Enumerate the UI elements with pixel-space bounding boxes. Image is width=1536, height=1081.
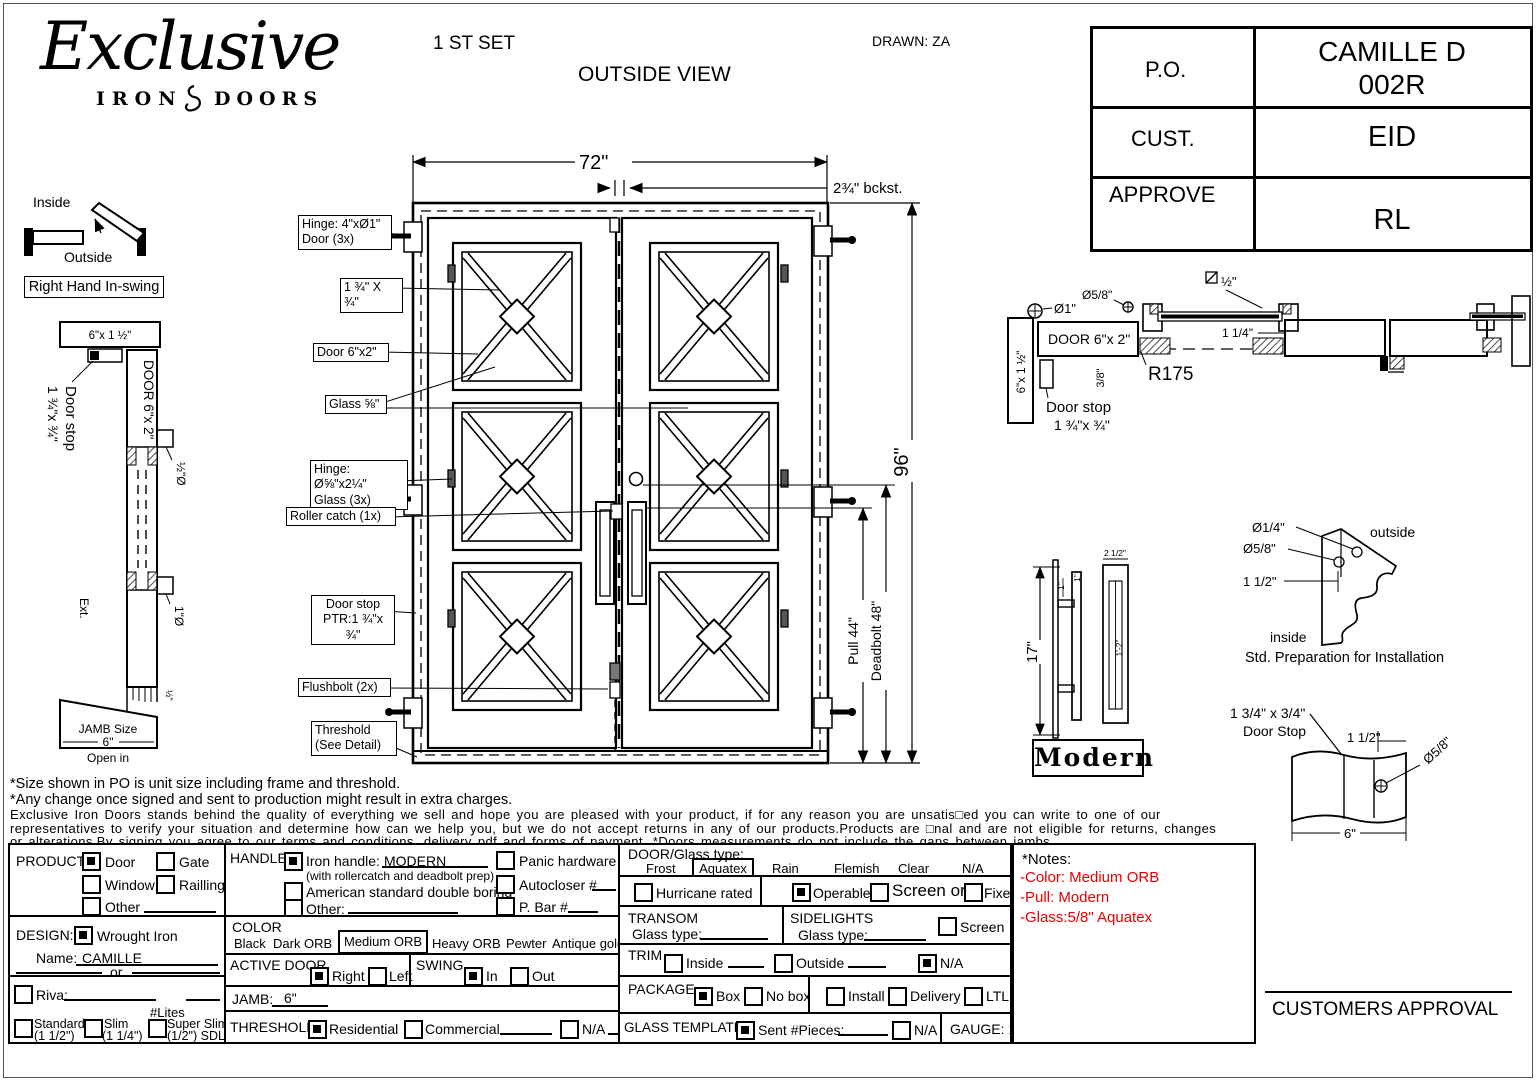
swing-diagram: Inside Outside (24, 194, 146, 265)
stop-detail-offset-label: 1 1/2" (1347, 730, 1381, 745)
active-left-checkbox[interactable] (368, 967, 387, 986)
threshold-commercial-checkbox[interactable] (404, 1020, 423, 1039)
glass-template-label: GLASS TEMPLATE (624, 1020, 743, 1035)
approval-label: CUSTOMERS APPROVAL (1272, 999, 1498, 1021)
threshold-section: THRESHOLD Residential Commercial N/A (224, 1010, 622, 1044)
disclaimer-line3: Exclusive Iron Doors stands behind the q… (10, 808, 1530, 822)
po-value-line1: CAMILLE D (1258, 35, 1526, 68)
product-window-label: Window (105, 877, 155, 893)
sidelights-glass-type-field[interactable] (864, 939, 926, 941)
design-standard-sub: (1 1/2") (34, 1029, 75, 1043)
package-install-label: Install (848, 988, 885, 1004)
hurricane-label: Hurricane rated (656, 885, 753, 901)
handle-one-a-label: 1" (1056, 582, 1066, 590)
package-delivery-label: Delivery (910, 988, 961, 1004)
jamb-field[interactable] (272, 1005, 328, 1007)
page-title: OUTSIDE VIEW (578, 63, 731, 87)
drawn-by-label: DRAWN: ZA (872, 33, 950, 49)
head-one-quarter-label: 1 1/4" (1222, 326, 1253, 340)
disclaimer-block: *Size shown in PO is unit size including… (10, 776, 1530, 848)
handle-label: HANDLE (230, 850, 287, 866)
handle-length-label: 1'-2" (1114, 640, 1124, 657)
operable-checkbox[interactable] (792, 883, 811, 902)
callout-glass: Glass ⅝" (325, 395, 387, 414)
design-name-label: Name: (36, 950, 77, 966)
disclaimer-line2: *Any change once signed and sent to prod… (10, 792, 1530, 808)
sidelights-screen-checkbox[interactable] (938, 917, 957, 936)
jamb-ext-label: Ext. (77, 598, 91, 619)
set-label: 1 ST SET (433, 33, 515, 55)
active-left-label: Left (389, 968, 412, 984)
install-dia14-label: Ø1/4" (1252, 520, 1285, 535)
approval-signature-line[interactable] (1265, 991, 1512, 993)
logo-script: Exclusive (40, 8, 339, 85)
head-dia-one-label: Ø1" (1054, 301, 1076, 316)
design-or-dash-right (132, 972, 220, 974)
logo-word-doors: DOORS (214, 88, 323, 110)
po-table: P.O. CAMILLE D 002R CUST. EID APPROVE RL (1090, 26, 1533, 252)
notes-glass: -Glass:5/8" Aquatex (1020, 909, 1152, 926)
swing-in-checkbox[interactable] (464, 967, 483, 986)
color-antique-gold-option[interactable]: Antique gold (552, 936, 624, 951)
package-label: PACKAGE (628, 981, 695, 997)
callout-bar-size: 1 ¾" X ¾" (340, 278, 403, 313)
handle-panic-label: Panic hardware (519, 853, 616, 869)
cust-label: CUST. (1131, 126, 1195, 152)
product-gate-label: Gate (179, 854, 209, 870)
head-dia58-label: Ø5/8" (1082, 288, 1112, 302)
trim-outside-field[interactable] (848, 966, 886, 968)
swing-in-label: In (486, 968, 498, 984)
head-stop-label: Door stop (1046, 399, 1111, 416)
product-label: PRODUCT: (16, 853, 88, 869)
package-box-label: Box (716, 988, 740, 1004)
notes-box: *Notes: -Color: Medium ORB -Pull: Modern… (1012, 843, 1256, 1044)
height-dim-label: 96" (891, 447, 913, 476)
handle-width-label: 2 1/2" (1104, 548, 1126, 558)
product-railing-label: Railling (179, 877, 225, 893)
po-table-divider (1253, 29, 1256, 249)
callout-hinge-glass-line1: Hinge: Ø⅝"x2¼" (314, 462, 404, 493)
jamb-size-value: 6" (103, 735, 114, 749)
callout-threshold-line2: (See Detail) (315, 738, 393, 753)
product-window-checkbox[interactable] (82, 875, 101, 894)
threshold-na-checkbox[interactable] (560, 1020, 579, 1039)
install-dia58-label: Ø5/8" (1243, 541, 1276, 556)
active-door-swing-section: ACTIVE DOOR Right Left SWING In Out (224, 953, 622, 989)
design-super-slim-sub: (1/2") SDL (167, 1029, 225, 1043)
handle-name-label: Modern (1032, 739, 1144, 777)
callout-door-stop: Door stop PTR:1 ¾"x ¾" (311, 595, 395, 645)
head-radius-label: R175 (1148, 364, 1193, 385)
package-no-box-label: No box (766, 988, 810, 1004)
callout-roller-catch: Roller catch (1x) (286, 507, 396, 526)
width-dim-label: 72" (579, 152, 608, 174)
design-riva-field[interactable] (64, 999, 156, 1001)
transom-divider (782, 907, 784, 945)
install-offset-label: 1 1/2" (1243, 574, 1277, 589)
design-name-field[interactable] (76, 964, 218, 966)
glass-clear-option[interactable]: Clear (898, 861, 929, 876)
jamb-top-size-label: 6"x 1 ½" (89, 330, 132, 342)
hurricane-checkbox[interactable] (634, 883, 653, 902)
glass-rain-option[interactable]: Rain (772, 861, 799, 876)
glass-template-divider (940, 1014, 942, 1042)
glass-template-section: GLASS TEMPLATE Sent #Pieces: N/A GAUGE: … (618, 1012, 1012, 1044)
jamb-label: JAMB: (232, 991, 273, 1007)
design-wrought-iron-checkbox[interactable] (74, 926, 93, 945)
color-pewter-option[interactable]: Pewter (506, 936, 546, 951)
package-install-checkbox[interactable] (826, 987, 845, 1006)
package-delivery-checkbox[interactable] (888, 987, 907, 1006)
glass-frost-option[interactable]: Frost (646, 861, 676, 876)
glass-na-option[interactable]: N/A (962, 861, 984, 876)
trim-outside-label: Outside (796, 955, 844, 971)
dimension-backset: 2¾" bckst. (598, 180, 903, 197)
jamb-half-tick-label: ½" (164, 690, 174, 701)
color-heavy-orb-option[interactable]: Heavy ORB (432, 936, 501, 951)
handle-iron-field[interactable] (382, 866, 488, 868)
callout-hinge-glass-line2: Glass (3x) (314, 493, 404, 508)
head-offset-label: 3/8" (1095, 368, 1107, 387)
callout-hinge-door-line1: Hinge: 4"xØ1" (302, 217, 388, 232)
head-jamb-size-label: 6"x 1 ½" (1016, 351, 1028, 394)
swing-label: SWING (416, 957, 463, 973)
trim-inside-label: Inside (686, 955, 723, 971)
jamb-door-stop-label: Door stop (62, 386, 79, 451)
jamb-door-stop-size: 1 ¾"x ¾" (45, 386, 61, 442)
notes-title: *Notes: (1022, 851, 1071, 868)
color-dark-orb-option[interactable]: Dark ORB (273, 936, 332, 951)
handle-pbar-checkbox[interactable] (496, 897, 515, 916)
active-right-checkbox[interactable] (310, 967, 329, 986)
jamb-dia-one-label: 1"Ø (172, 606, 186, 626)
head-door-size-label: DOOR 6"x 2" (1048, 331, 1130, 347)
glass-template-na-checkbox[interactable] (892, 1021, 911, 1040)
handle-height-label: 17" (1024, 641, 1041, 663)
design-style-section: Riva: #Lites Standard (1 1/2") Slim (1 1… (8, 975, 228, 1044)
callout-flushbolt: Flushbolt (2x) (298, 678, 391, 697)
notes-pull: -Pull: Modern (1020, 889, 1109, 906)
product-other-field[interactable] (144, 911, 216, 913)
package-no-box-checkbox[interactable] (744, 987, 763, 1006)
handle-section: HANDLE Iron handle: MODERN (with rollerc… (224, 843, 622, 919)
design-or-dash-left (16, 972, 102, 974)
trim-section: TRIM Inside Outside N/A (618, 943, 1012, 979)
handle-panic-checkbox[interactable] (496, 851, 515, 870)
install-outside-label: outside (1370, 524, 1415, 540)
threshold-residential-label: Residential (329, 1021, 398, 1037)
trim-outside-checkbox[interactable] (774, 954, 793, 973)
jamb-size-title: JAMB Size (79, 722, 138, 736)
po-value-line2: 002R (1258, 68, 1526, 101)
threshold-label: THRESHOLD (230, 1019, 316, 1035)
glass-template-sent-label: Sent #Pieces: (758, 1022, 844, 1038)
handle-autocloser-checkbox[interactable] (496, 875, 515, 894)
color-section: COLOR Black Dark ORB Medium ORB Heavy OR… (224, 915, 622, 957)
operable-label: Operable (813, 885, 871, 901)
callout-hinge-glass: Hinge: Ø⅝"x2¼" Glass (3x) (310, 460, 408, 510)
sidelights-glass-type-label: Glass type: (798, 927, 868, 943)
head-section-drawing: 6"x 1 ½" Ø1" DOOR 6"x 2" Door stop 1 ¾"x… (1000, 255, 1536, 470)
handle-iron-note: (with rollercatch and deadbolt prep) (306, 869, 494, 883)
product-door-label: Door (105, 854, 135, 870)
swing-outside-label: Outside (64, 249, 112, 265)
sidelights-screen-label: Screen (960, 919, 1004, 935)
design-slim-checkbox[interactable] (84, 1019, 103, 1038)
glass-template-sent-checkbox[interactable] (736, 1021, 755, 1040)
jamb-value: 6" (284, 990, 297, 1006)
color-black-option[interactable]: Black (234, 936, 266, 951)
install-prep-drawing: Ø1/4" outside Ø5/8" 1 1/2" inside Std. P… (1235, 495, 1535, 675)
handle-pbar-field[interactable] (568, 911, 598, 913)
jamb-dia-half-label: ½"Ø (174, 462, 188, 486)
logo-ornament-icon (176, 84, 212, 118)
handle-autocloser-field[interactable] (592, 889, 616, 891)
design-slim-sub: (1 1/4") (102, 1029, 143, 1043)
po-value: CAMILLE D 002R (1258, 35, 1526, 101)
design-wrought-iron-label: Wrought Iron (97, 928, 178, 944)
handle-pbar-label: P. Bar # (519, 899, 568, 915)
rated-section: Hurricane rated Operable Screen or Fixed (618, 875, 1012, 909)
disclaimer-line1: *Size shown in PO is unit size including… (10, 776, 1530, 792)
design-riva-checkbox[interactable] (14, 985, 33, 1004)
handle-other-field[interactable] (348, 912, 458, 914)
threshold-na-field[interactable] (608, 1033, 618, 1035)
trim-label: TRIM (628, 947, 662, 963)
product-section: PRODUCT: Door Gate Window Railling Other (8, 843, 228, 919)
handle-american-label: American standard double boring (306, 884, 512, 900)
screen-or-label: Screen or (892, 881, 966, 901)
handing-label: Right Hand In-swing (24, 276, 164, 298)
handle-detail-drawing: 17" 1" 1" 2 1/2" 1'-2" (1015, 548, 1155, 748)
transom-sidelights-section: TRANSOM Glass type: SIDELIGHTS Glass typ… (618, 905, 1012, 947)
swing-out-checkbox[interactable] (510, 967, 529, 986)
jamb-door-size-label: DOOR 6"x 2" (141, 360, 156, 440)
stop-detail-size-line2: Door Stop (1243, 723, 1306, 739)
design-section: DESIGN: Wrought Iron Name: CAMILLE or (8, 915, 228, 979)
handle-iron-label: Iron handle: (306, 853, 380, 869)
callout-hinge-door-line2: Door (3x) (302, 232, 388, 247)
design-super-slim-checkbox[interactable] (148, 1019, 167, 1038)
handle-autocloser-label: Autocloser # (519, 877, 597, 893)
callout-hinge-door: Hinge: 4"xØ1" Door (3x) (298, 215, 392, 250)
design-standard-checkbox[interactable] (14, 1019, 33, 1038)
cust-value: EID (1258, 121, 1526, 154)
active-right-label: Right (332, 968, 365, 984)
design-label: DESIGN: (16, 927, 74, 943)
jamb-open-in-label: Open in (87, 751, 129, 765)
glass-flemish-option[interactable]: Flemish (834, 861, 880, 876)
swing-inside-label: Inside (33, 194, 71, 210)
dimension-72: 72" (413, 152, 827, 203)
color-medium-orb-selected[interactable]: Medium ORB (338, 930, 428, 954)
threshold-na-label: N/A (582, 1021, 605, 1037)
glass-template-sent-field[interactable] (838, 1034, 888, 1036)
product-door-checkbox[interactable] (82, 852, 101, 871)
transom-glass-type-label: Glass type: (632, 926, 702, 942)
callout-door-stop-line2: PTR:1 ¾"x ¾" (315, 612, 391, 643)
deadbolt-dim-label: Deadbolt 48" (868, 601, 884, 682)
approve-value: RL (1258, 204, 1526, 237)
design-riva-field2[interactable] (186, 999, 220, 1001)
threshold-commercial-field[interactable] (500, 1033, 552, 1035)
drawing-sheet: Exclusive IRON DOORS 1 ST SET OUTSIDE VI… (0, 0, 1536, 1081)
handle-one-b-label: 1" (1072, 574, 1082, 582)
package-ltl-label: LTL (986, 988, 1009, 1004)
glass-template-na-label: N/A (914, 1022, 937, 1038)
jamb-vertical-section: 6"x 1 ½" Door stop 1 ¾"x ¾" DOOR 6"x 2" … (45, 322, 188, 765)
threshold-commercial-label: Commercial (425, 1021, 500, 1037)
product-railing-checkbox[interactable] (156, 875, 175, 894)
trim-inside-field[interactable] (728, 966, 764, 968)
handle-iron-checkbox[interactable] (284, 852, 303, 871)
package-ltl-checkbox[interactable] (964, 987, 983, 1006)
trim-na-label: N/A (940, 955, 963, 971)
approve-label: APPROVE (1109, 182, 1215, 208)
stop-detail-dia-label: Ø5/8" (1420, 733, 1455, 766)
backset-dim-label: 2¾" bckst. (833, 180, 903, 197)
head-half-label: ½" (1221, 274, 1237, 289)
package-box-checkbox[interactable] (694, 987, 713, 1006)
door-glass-type-section: DOOR/Glass type: Frost Aquatex Rain Flem… (618, 843, 1012, 879)
install-inside-label: inside (1270, 629, 1307, 645)
sidelights-label: SIDELIGHTS (790, 910, 873, 926)
po-table-row-line-1 (1093, 106, 1530, 109)
trim-na-checkbox[interactable] (918, 954, 937, 973)
package-section: PACKAGE Box No box Install Delivery LTL (618, 975, 1012, 1016)
color-label: COLOR (232, 919, 282, 935)
rated-divider (760, 877, 762, 907)
logo-word-iron: IRON (96, 88, 183, 110)
install-caption: Std. Preparation for Installation (1245, 650, 1444, 666)
po-table-row-line-2 (1093, 176, 1530, 179)
transom-label: TRANSOM (628, 910, 698, 926)
transom-glass-type-field[interactable] (700, 938, 768, 940)
po-label: P.O. (1145, 57, 1186, 83)
notes-color: -Color: Medium ORB (1020, 869, 1159, 886)
product-other-label: Other (105, 899, 140, 915)
swing-out-label: Out (532, 968, 555, 984)
product-other-checkbox[interactable] (82, 897, 101, 916)
fixed-checkbox[interactable] (964, 883, 983, 902)
callout-threshold-line1: Threshold (315, 723, 393, 738)
screen-or-checkbox[interactable] (870, 883, 889, 902)
product-gate-checkbox[interactable] (156, 852, 175, 871)
threshold-residential-checkbox[interactable] (308, 1020, 327, 1039)
head-stop-size-label: 1 ¾"x ¾" (1054, 417, 1110, 433)
callout-threshold: Threshold (See Detail) (311, 721, 397, 756)
stop-detail-size-line1: 1 3/4" x 3/4" (1230, 705, 1305, 721)
callout-door-size: Door 6"x2" (313, 343, 389, 362)
callout-door-stop-line1: Door stop (315, 597, 391, 612)
trim-inside-checkbox[interactable] (664, 954, 683, 973)
pull-dim-label: Pull 44" (845, 617, 861, 665)
